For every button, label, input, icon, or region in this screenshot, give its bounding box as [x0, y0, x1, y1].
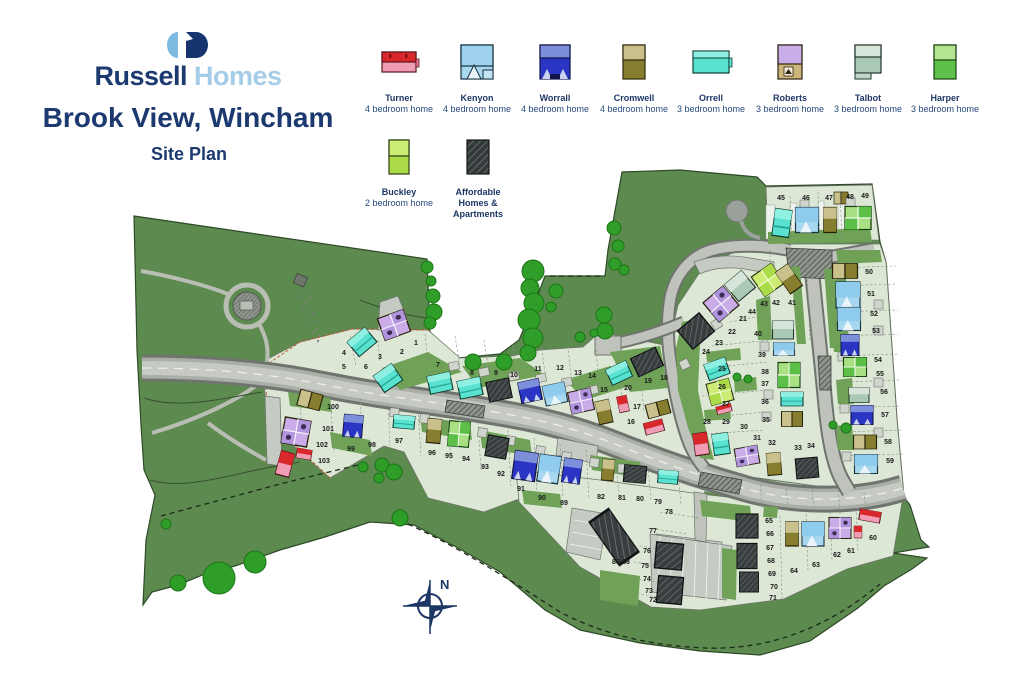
- svg-text:56: 56: [880, 389, 888, 396]
- svg-text:82: 82: [597, 494, 605, 501]
- svg-text:79: 79: [654, 499, 662, 506]
- svg-text:42: 42: [772, 300, 780, 307]
- svg-text:17: 17: [633, 404, 641, 411]
- svg-text:16: 16: [627, 419, 635, 426]
- svg-text:53: 53: [872, 328, 880, 335]
- svg-text:20: 20: [624, 385, 632, 392]
- svg-text:25: 25: [718, 366, 726, 373]
- svg-text:12: 12: [556, 365, 564, 372]
- svg-text:73: 73: [645, 588, 653, 595]
- svg-text:35: 35: [762, 417, 770, 424]
- svg-text:39: 39: [758, 352, 766, 359]
- svg-text:13: 13: [574, 370, 582, 377]
- svg-text:23: 23: [715, 340, 723, 347]
- svg-text:71: 71: [769, 595, 777, 602]
- svg-text:21: 21: [739, 316, 747, 323]
- svg-text:37: 37: [761, 381, 769, 388]
- svg-text:32: 32: [768, 440, 776, 447]
- svg-text:101: 101: [322, 426, 334, 433]
- svg-text:41: 41: [788, 300, 796, 307]
- svg-text:77: 77: [649, 528, 657, 535]
- svg-text:30: 30: [740, 424, 748, 431]
- svg-text:27: 27: [722, 401, 730, 408]
- svg-text:49: 49: [861, 193, 869, 200]
- svg-text:69: 69: [768, 571, 776, 578]
- svg-text:7: 7: [436, 362, 440, 369]
- svg-text:91: 91: [517, 486, 525, 493]
- svg-text:68: 68: [767, 558, 775, 565]
- svg-text:14: 14: [588, 373, 596, 380]
- svg-text:40: 40: [754, 331, 762, 338]
- svg-text:5: 5: [342, 364, 346, 371]
- svg-text:80: 80: [636, 496, 644, 503]
- svg-text:100: 100: [327, 404, 339, 411]
- svg-text:11: 11: [534, 366, 542, 373]
- svg-text:8: 8: [470, 370, 474, 377]
- svg-text:19: 19: [644, 378, 652, 385]
- svg-text:92: 92: [497, 471, 505, 478]
- svg-text:93: 93: [481, 464, 489, 471]
- svg-text:95: 95: [445, 453, 453, 460]
- svg-text:83-88: 83-88: [612, 559, 630, 566]
- svg-text:96: 96: [428, 450, 436, 457]
- svg-text:1: 1: [414, 340, 418, 347]
- svg-text:60: 60: [869, 535, 877, 542]
- svg-text:9: 9: [494, 370, 498, 377]
- svg-text:63: 63: [812, 562, 820, 569]
- svg-text:54: 54: [874, 357, 882, 364]
- svg-text:102: 102: [316, 442, 328, 449]
- svg-text:18: 18: [660, 375, 668, 382]
- svg-text:99: 99: [347, 446, 355, 453]
- svg-text:N: N: [440, 577, 449, 592]
- svg-text:89: 89: [560, 500, 568, 507]
- svg-text:24: 24: [702, 349, 710, 356]
- svg-text:6: 6: [364, 364, 368, 371]
- svg-text:76: 76: [643, 548, 651, 555]
- svg-text:103: 103: [318, 458, 330, 465]
- svg-text:90: 90: [538, 495, 546, 502]
- svg-text:28: 28: [703, 419, 711, 426]
- svg-text:15: 15: [600, 387, 608, 394]
- svg-text:50: 50: [865, 269, 873, 276]
- svg-text:45: 45: [777, 195, 785, 202]
- svg-text:66: 66: [766, 531, 774, 538]
- svg-text:10: 10: [510, 372, 518, 379]
- svg-text:26: 26: [718, 384, 726, 391]
- svg-text:51: 51: [867, 291, 875, 298]
- svg-text:74: 74: [643, 576, 651, 583]
- svg-text:81: 81: [618, 495, 626, 502]
- svg-text:52: 52: [870, 311, 878, 318]
- svg-text:70: 70: [770, 584, 778, 591]
- svg-text:4: 4: [342, 350, 346, 357]
- svg-text:78: 78: [665, 509, 673, 516]
- svg-text:44: 44: [748, 309, 756, 316]
- svg-text:98: 98: [368, 442, 376, 449]
- svg-text:47: 47: [825, 195, 833, 202]
- svg-text:38: 38: [761, 369, 769, 376]
- svg-text:29: 29: [722, 419, 730, 426]
- svg-text:34: 34: [807, 443, 815, 450]
- svg-text:97: 97: [395, 438, 403, 445]
- svg-text:62: 62: [833, 552, 841, 559]
- svg-text:65: 65: [765, 518, 773, 525]
- svg-text:72: 72: [649, 597, 657, 604]
- svg-text:61: 61: [847, 548, 855, 555]
- svg-text:75: 75: [641, 563, 649, 570]
- svg-text:57: 57: [881, 412, 889, 419]
- svg-text:33: 33: [794, 445, 802, 452]
- svg-text:46: 46: [802, 195, 810, 202]
- svg-text:58: 58: [884, 439, 892, 446]
- svg-text:94: 94: [462, 456, 470, 463]
- svg-text:55: 55: [876, 371, 884, 378]
- svg-text:31: 31: [753, 435, 761, 442]
- svg-text:36: 36: [761, 399, 769, 406]
- svg-text:22: 22: [728, 329, 736, 336]
- svg-text:3: 3: [378, 354, 382, 361]
- svg-text:64: 64: [790, 568, 798, 575]
- svg-text:67: 67: [766, 545, 774, 552]
- svg-text:2: 2: [400, 349, 404, 356]
- svg-text:43: 43: [760, 301, 768, 308]
- svg-text:59: 59: [886, 458, 894, 465]
- svg-text:48: 48: [846, 194, 854, 201]
